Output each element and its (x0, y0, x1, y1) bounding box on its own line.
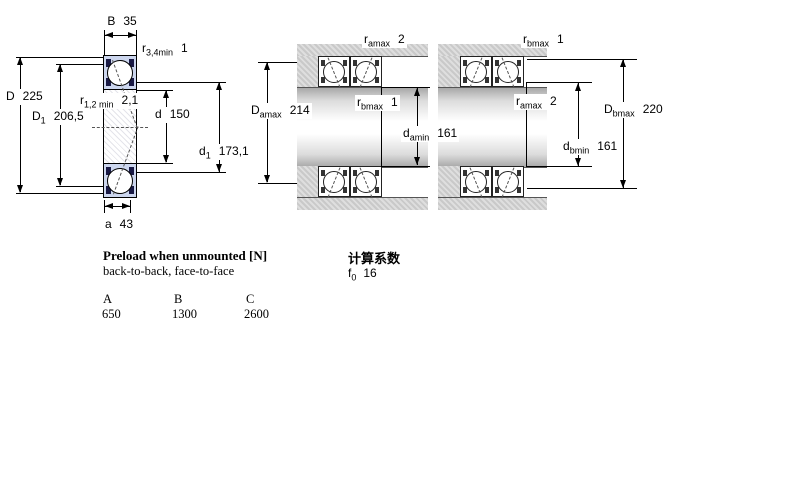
bearing-a-bottom-right (350, 166, 382, 197)
arrowhead (57, 64, 63, 72)
drawing-primitive: amax (368, 38, 390, 48)
drawing-primitive: d (563, 139, 570, 153)
housing-shoulder (297, 166, 319, 197)
drawing-primitive: 173,1 (219, 144, 249, 158)
drawing-primitive: bmin (570, 145, 590, 155)
dim-label-r34min: r3,4min1 (140, 41, 190, 57)
bearing-b-top-left (460, 56, 492, 87)
bearing-b-bottom-right (492, 166, 524, 197)
ext-line (137, 172, 226, 173)
dim-label-r12min: r1,2 min2,1 (78, 93, 140, 109)
arrowhead (575, 158, 581, 166)
drawing-primitive: 16 (363, 266, 376, 280)
arrowhead (620, 180, 626, 188)
preload-subtitle: back-to-back, face-to-face (103, 264, 234, 279)
drawing-primitive: 214 (290, 103, 310, 117)
table-header-A: A (103, 292, 112, 307)
drawing-primitive: D (6, 89, 15, 103)
bearing-section-bottom (103, 163, 137, 198)
table-header-B: B (174, 292, 182, 307)
arrowhead (575, 83, 581, 91)
dim-label-B: B35 (98, 14, 146, 30)
housing-shoulder (438, 56, 461, 87)
drawing-primitive: amin (410, 132, 430, 142)
dim-label-D1: D1206,5 (30, 109, 86, 125)
ext-line (56, 186, 103, 187)
drawing-primitive: 206,5 (54, 109, 84, 123)
bearing-drawing-page: B35 r3,4min1 D225 D1206,5 r1,2 min2,1 d1… (0, 0, 800, 500)
drawing-primitive: 1 (557, 32, 564, 46)
dim-label-d1: d1173,1 (197, 144, 251, 160)
dim-line-Dbmax (623, 60, 624, 188)
dim-label-rbmax-b: rbmax1 (521, 32, 566, 48)
arrowhead (414, 88, 420, 96)
shoulder-line (381, 166, 430, 167)
arrowhead (17, 57, 23, 65)
ext-line (527, 188, 637, 189)
ext-line (136, 28, 137, 55)
ext-line (137, 82, 226, 83)
drawing-primitive: D (251, 103, 260, 117)
drawing-primitive: 161 (437, 126, 457, 140)
drawing-primitive: bmax (613, 108, 635, 118)
dim-label-Dbmax: Dbmax220 (602, 102, 665, 118)
table-header-C: C (246, 292, 254, 307)
arrowhead (105, 203, 113, 209)
dim-label-dbmin: dbmin161 (561, 139, 619, 155)
arrowhead (17, 185, 23, 193)
drawing-primitive: amax (520, 100, 542, 110)
dim-label-rbmax-a: rbmax1 (355, 95, 400, 111)
dim-label-ramax-b: ramax2 (514, 94, 559, 110)
drawing-primitive: D (604, 102, 613, 116)
ext-line (258, 183, 297, 184)
bearing-b-bottom-left (460, 166, 492, 197)
dim-label-ramax-a: ramax2 (362, 32, 407, 48)
drawing-primitive: 35 (123, 14, 136, 28)
drawing-primitive: 1 (41, 115, 46, 125)
drawing-primitive: 161 (597, 139, 617, 153)
table-value-C: 2600 (244, 307, 269, 322)
shoulder-line (381, 87, 430, 88)
drawing-primitive: bmax (361, 101, 383, 111)
bearing-a-bottom-left (318, 166, 350, 197)
bearing-b-top-right (492, 56, 524, 87)
arrowhead (414, 157, 420, 165)
drawing-primitive: amax (260, 109, 282, 119)
drawing-primitive: D (32, 109, 41, 123)
drawing-primitive: 43 (120, 217, 133, 231)
drawing-primitive: 1 (181, 41, 188, 55)
dim-line-d (166, 91, 167, 162)
drawing-primitive: d (155, 107, 162, 121)
housing-bottom (438, 197, 547, 210)
dim-label-damin: damin161 (401, 126, 459, 142)
ext-line (16, 57, 103, 58)
drawing-primitive: 1,2 min (84, 99, 114, 109)
drawing-primitive: B (107, 14, 115, 28)
drawing-primitive: 1 (206, 150, 211, 160)
ext-line (526, 82, 592, 83)
drawing-primitive: 220 (643, 102, 663, 116)
dim-label-d: d150 (153, 107, 192, 123)
calculation-factor: f016 (348, 266, 377, 282)
bearing-a-top-right (350, 56, 382, 87)
calculation-title: 计算系数 (348, 248, 400, 267)
arrowhead (105, 32, 113, 38)
arrowhead (264, 62, 270, 70)
drawing-primitive: a (105, 217, 112, 231)
drawing-primitive: d (199, 144, 206, 158)
drawing-primitive: 2,1 (122, 93, 139, 107)
bearing-a-top-left (318, 56, 350, 87)
drawing-primitive: 3,4min (146, 47, 173, 57)
drawing-primitive: 150 (170, 107, 190, 121)
ext-line (16, 193, 103, 194)
drawing-primitive: 2 (550, 94, 557, 108)
arrowhead (163, 155, 169, 163)
housing-shoulder (297, 56, 319, 87)
arrowhead (57, 178, 63, 186)
drawing-primitive: d (403, 126, 410, 140)
arrowhead (216, 164, 222, 172)
arrowhead (620, 59, 626, 67)
ext-line (56, 64, 103, 65)
preload-title: Preload when unmounted [N] (103, 248, 267, 264)
arrowhead (122, 203, 130, 209)
drawing-primitive: bmax (527, 38, 549, 48)
housing-shoulder (438, 166, 461, 197)
dim-line-Damax (267, 63, 268, 182)
drawing-primitive: 225 (23, 89, 43, 103)
table-value-A: 650 (102, 307, 121, 322)
drawing-primitive: 1 (391, 95, 398, 109)
arrowhead (163, 90, 169, 98)
ext-line (526, 166, 592, 167)
arrowhead (264, 175, 270, 183)
dim-label-a: a43 (95, 217, 143, 233)
ext-line (137, 163, 173, 164)
dim-line-D (20, 58, 21, 192)
housing-bottom (297, 197, 428, 210)
drawing-primitive: 2 (398, 32, 405, 46)
centerline (92, 127, 148, 128)
arrowhead (128, 32, 136, 38)
dim-label-Damax: Damax214 (249, 103, 312, 119)
table-value-B: 1300 (172, 307, 197, 322)
drawing-primitive: 0 (351, 272, 356, 282)
arrowhead (216, 82, 222, 90)
dim-label-D: D225 (4, 89, 45, 105)
